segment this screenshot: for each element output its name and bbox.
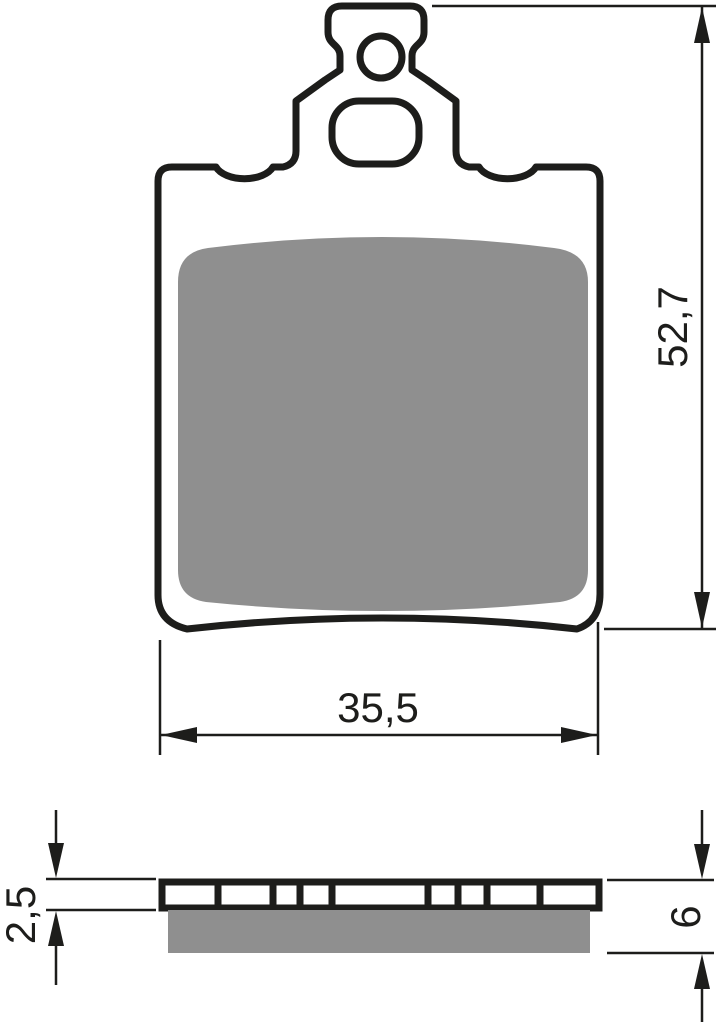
friction-material-front <box>178 237 588 611</box>
side-view <box>162 880 599 953</box>
backplate-thickness-label: 2,5 <box>0 886 44 944</box>
backplate-side <box>162 882 599 908</box>
friction-material-side <box>168 910 590 953</box>
arrow-right-icon <box>561 727 597 743</box>
total-thickness-label: 6 <box>662 905 709 928</box>
arrow-up-icon <box>694 7 710 43</box>
front-view <box>158 6 600 629</box>
total-thickness-dimension: 6 <box>607 810 714 1022</box>
backplate-thickness-dimension: 2,5 <box>0 810 156 985</box>
arrow-up-icon <box>694 954 710 989</box>
arrow-down-icon <box>48 843 64 878</box>
brake-pad-drawing: 52,7 35,5 <box>0 0 723 1024</box>
arrow-left-icon <box>161 727 197 743</box>
technical-drawing-page: 52,7 35,5 <box>0 0 723 1024</box>
width-dimension-label: 35,5 <box>337 684 419 731</box>
arrow-down-icon <box>694 844 710 879</box>
width-dimension: 35,5 <box>160 622 598 755</box>
tab-slot-hole <box>332 101 419 164</box>
arrow-down-icon <box>694 592 710 628</box>
height-dimension-label: 52,7 <box>649 286 696 368</box>
arrow-up-icon <box>48 911 64 946</box>
tab-round-hole <box>360 36 402 78</box>
